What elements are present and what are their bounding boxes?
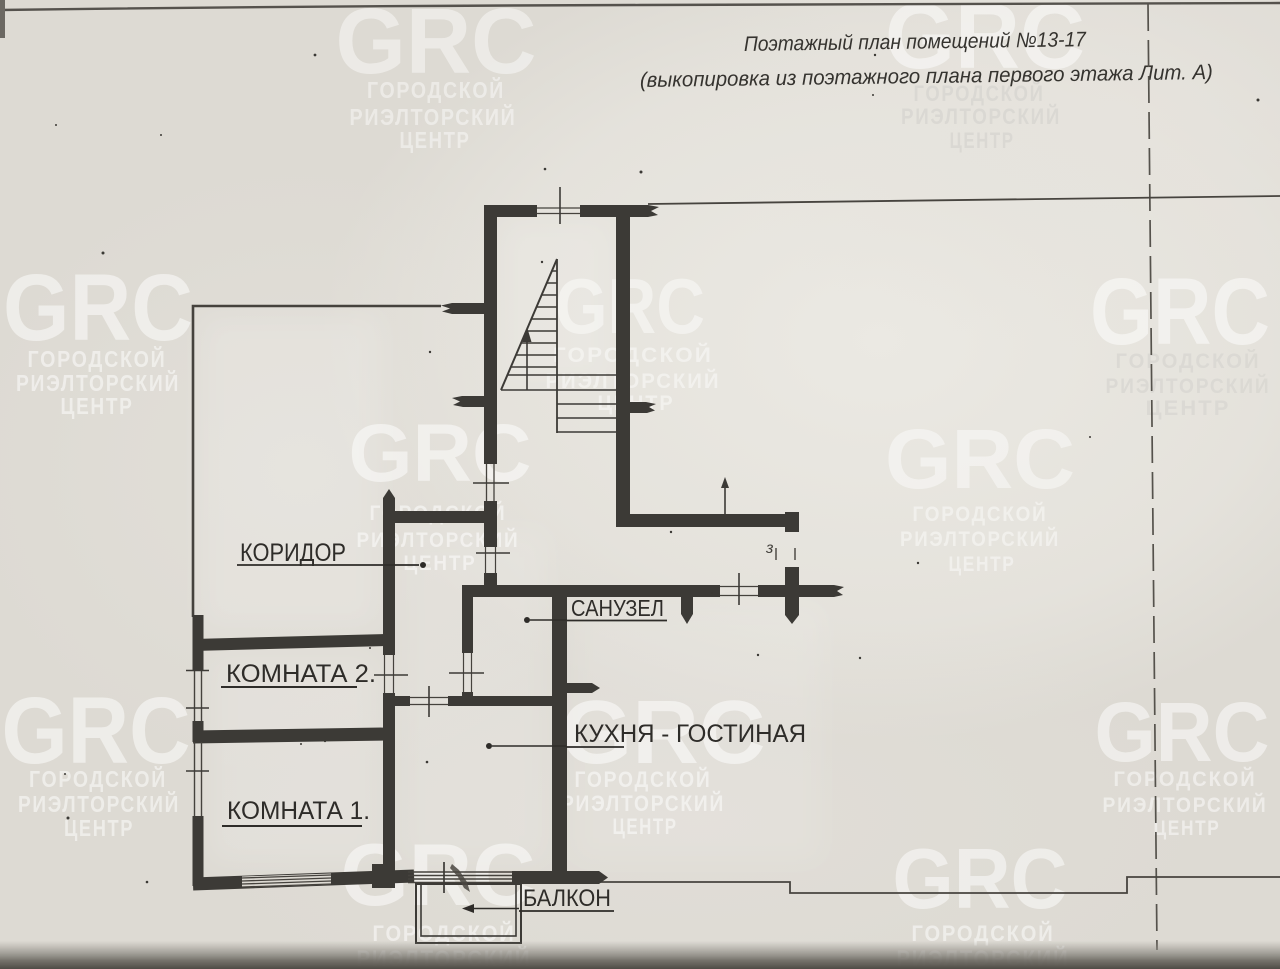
svg-text:РИЭЛТОРСКИЙ: РИЭЛТОРСКИЙ [1106, 374, 1271, 398]
svg-text:ГОРОДСКОЙ: ГОРОДСКОЙ [913, 502, 1048, 526]
svg-text:ЦЕНТР: ЦЕНТР [61, 393, 134, 419]
svg-text:ЦЕНТР: ЦЕНТР [613, 814, 678, 839]
svg-text:РИЭЛТОРСКИЙ: РИЭЛТОРСКИЙ [900, 527, 1060, 551]
svg-text:БАЛКОН: БАЛКОН [523, 885, 611, 912]
svg-text:з: з [765, 540, 773, 557]
svg-text:ЦЕНТР: ЦЕНТР [950, 128, 1015, 153]
svg-text:ЦЕНТР: ЦЕНТР [1154, 817, 1221, 840]
svg-text:КОМНАТА 1.: КОМНАТА 1. [227, 797, 370, 825]
svg-text:GRC: GRC [893, 832, 1068, 927]
svg-text:РИЭЛТОРСКИЙ: РИЭЛТОРСКИЙ [18, 790, 180, 817]
svg-text:GRC: GRC [885, 412, 1075, 506]
svg-text:КОМНАТА 2.: КОМНАТА 2. [226, 660, 376, 688]
svg-text:КУХНЯ - ГОСТИНАЯ: КУХНЯ - ГОСТИНАЯ [574, 720, 806, 748]
svg-text:ГОРОДСКОЙ: ГОРОДСКОЙ [29, 765, 167, 792]
svg-text:РИЭЛТОРСКИЙ: РИЭЛТОРСКИЙ [16, 369, 180, 396]
svg-text:ЦЕНТР: ЦЕНТР [64, 815, 134, 841]
svg-text:Поэтажный план помещений №13-1: Поэтажный план помещений №13-17 [744, 28, 1087, 56]
svg-text:ЦЕНТР: ЦЕНТР [404, 552, 477, 575]
svg-text:РИЭЛТОРСКИЙ: РИЭЛТОРСКИЙ [561, 791, 725, 816]
svg-text:РИЭЛТОРСКИЙ: РИЭЛТОРСКИЙ [901, 104, 1061, 129]
svg-text:ГОРОДСКОЙ: ГОРОДСКОЙ [1116, 349, 1261, 373]
svg-text:РИЭЛТОРСКИЙ: РИЭЛТОРСКИЙ [350, 103, 517, 130]
svg-text:GRC: GRC [1095, 685, 1270, 779]
svg-text:ЦЕНТР: ЦЕНТР [1146, 397, 1231, 420]
svg-text:ГОРОДСКОЙ: ГОРОДСКОЙ [367, 76, 505, 103]
svg-text:ГОРОДСКОЙ: ГОРОДСКОЙ [553, 343, 713, 367]
svg-text:РИЭЛТОРСКИЙ: РИЭЛТОРСКИЙ [1103, 793, 1268, 817]
svg-text:GRC: GRC [349, 408, 532, 499]
svg-text:САНУЗЕЛ: САНУЗЕЛ [571, 595, 664, 621]
svg-text:ЦЕНТР: ЦЕНТР [949, 553, 1016, 576]
svg-text:ГОРОДСКОЙ: ГОРОДСКОЙ [1114, 767, 1257, 791]
svg-text:КОРИДОР: КОРИДОР [240, 539, 346, 567]
svg-text:ГОРОДСКОЙ: ГОРОДСКОЙ [575, 767, 712, 792]
svg-text:ЦЕНТР: ЦЕНТР [400, 127, 471, 153]
svg-text:ГОРОДСКОЙ: ГОРОДСКОЙ [28, 345, 167, 372]
